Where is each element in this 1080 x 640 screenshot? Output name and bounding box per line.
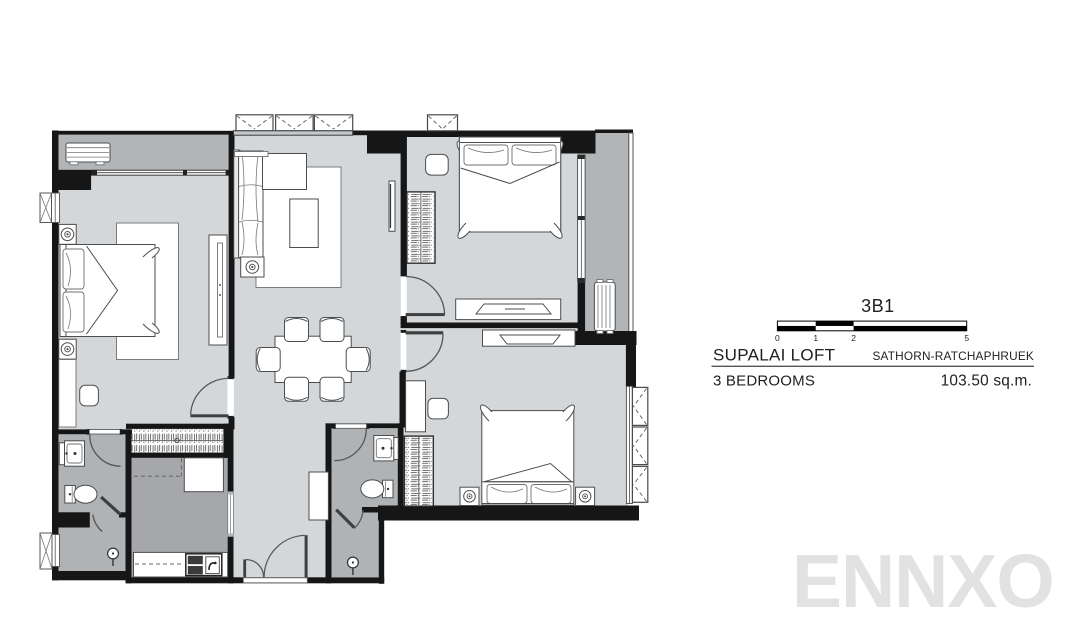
svg-text:103.50 sq.m.: 103.50 sq.m. <box>941 373 1032 390</box>
svg-text:SATHORN-RATCHAPHRUEK: SATHORN-RATCHAPHRUEK <box>872 349 1034 363</box>
svg-text:2: 2 <box>851 333 856 343</box>
svg-text:3 BEDROOMS: 3 BEDROOMS <box>713 373 815 390</box>
svg-text:SUPALAI LOFT: SUPALAI LOFT <box>713 346 835 365</box>
svg-text:1: 1 <box>813 333 818 343</box>
svg-text:ENNXO: ENNXO <box>792 539 1054 623</box>
svg-text:5: 5 <box>964 333 969 343</box>
svg-text:0: 0 <box>775 333 780 343</box>
svg-text:3B1: 3B1 <box>861 296 895 316</box>
